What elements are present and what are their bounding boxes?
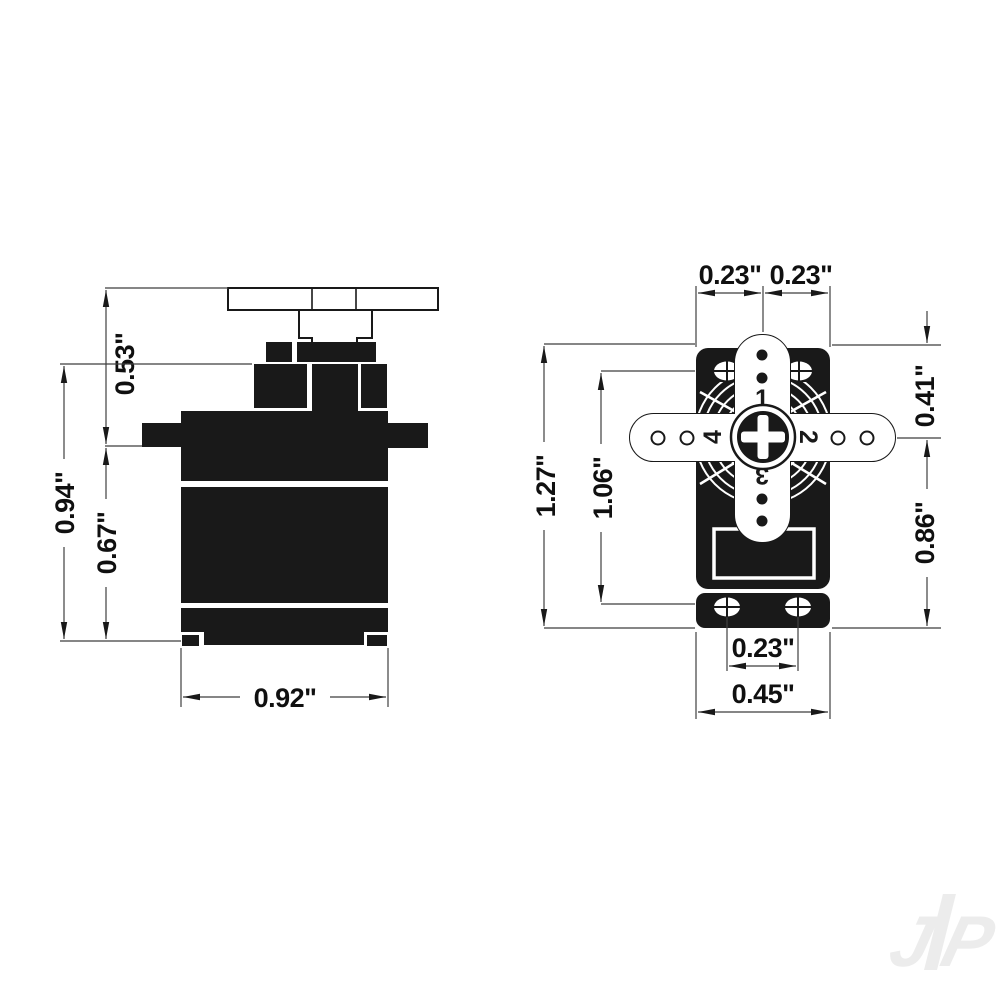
dim-label-086: 0.86" — [910, 489, 940, 577]
dim-label-041: 0.41" — [910, 365, 940, 428]
svg-text:0.92": 0.92" — [254, 683, 317, 713]
horn-hub-side — [299, 310, 372, 343]
upper-case — [181, 411, 388, 481]
dim-label-127: 1.27" — [531, 442, 561, 530]
svg-text:0.86": 0.86" — [910, 502, 940, 565]
dim-label-094: 0.94" — [50, 459, 80, 547]
case-top-block — [266, 342, 292, 362]
horn-hole — [652, 432, 665, 445]
mounting-tab-left — [142, 423, 182, 447]
horn-hole — [757, 494, 768, 505]
case-top-block — [297, 342, 376, 362]
svg-text:0.41": 0.41" — [910, 365, 940, 428]
dim-label-023-right: 0.23" — [770, 260, 833, 290]
mounting-tab-right — [387, 423, 428, 448]
drawing-canvas: 0.53" 0.94" 0.67" — [0, 0, 1000, 1000]
watermark-logo: J P — [882, 894, 1000, 982]
dim-label-067: 0.67" — [92, 499, 122, 587]
horn-hole — [757, 373, 768, 384]
svg-text:0.67": 0.67" — [92, 512, 122, 575]
dim-label-045: 0.45" — [732, 679, 795, 709]
output-shaft-column — [312, 364, 358, 414]
svg-text:0.94": 0.94" — [50, 472, 80, 535]
servo-dimension-drawing: 0.53" 0.94" 0.67" — [0, 0, 1000, 1000]
phillips-screw-center — [731, 405, 795, 469]
horn-hole — [861, 432, 874, 445]
foot-right — [367, 635, 387, 646]
horn-arm-number-4: 4 — [699, 430, 727, 444]
dim-label-023-bottom: 0.23" — [732, 633, 795, 663]
dim-label-106: 1.06" — [588, 444, 618, 532]
dim-label-023-left: 0.23" — [699, 260, 762, 290]
foot-left — [182, 635, 199, 646]
dim-label-092: 0.92" — [240, 683, 330, 713]
background — [0, 0, 1000, 1000]
svg-text:1.06": 1.06" — [588, 457, 618, 520]
bottom-case-strip — [181, 608, 388, 632]
gear-housing-block — [254, 364, 307, 408]
horn-arm-number-2: 2 — [794, 430, 822, 444]
horn-hole — [757, 350, 768, 361]
horn-hole — [681, 432, 694, 445]
horn-bar-side — [228, 288, 438, 310]
main-case — [181, 487, 388, 603]
horn-hole — [832, 432, 845, 445]
bottom-lip — [204, 630, 364, 645]
gear-housing-block — [361, 364, 387, 408]
svg-text:1.27": 1.27" — [531, 455, 561, 518]
horn-hole — [757, 516, 768, 527]
